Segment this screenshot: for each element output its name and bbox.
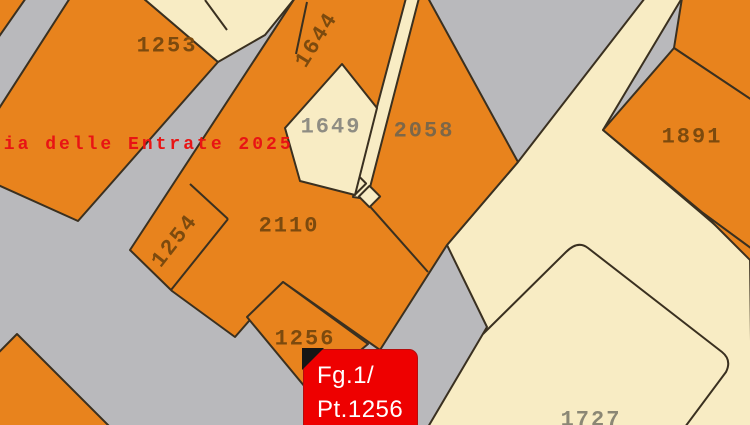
cadastral-map-viewport: 1253 1644 1649 2058 1891 1254 2110 1256 …	[0, 0, 750, 425]
marker-sheet-line: Fg.1/	[317, 359, 403, 393]
selected-parcel-marker[interactable]: Fg.1/ Pt.1256	[303, 349, 418, 425]
agency-watermark: zia delle Entrate 2025	[0, 135, 294, 155]
marker-parcel-line: Pt.1256	[317, 393, 403, 425]
marker-text: Fg.1/ Pt.1256	[317, 359, 403, 425]
